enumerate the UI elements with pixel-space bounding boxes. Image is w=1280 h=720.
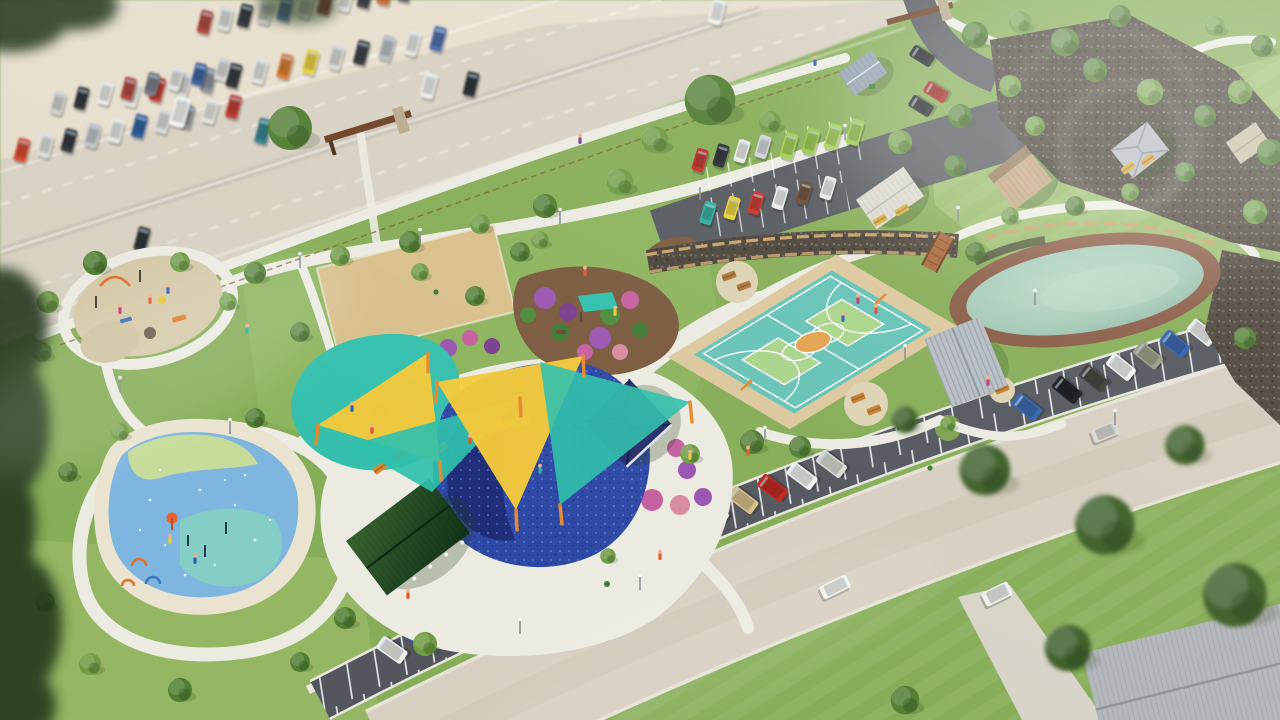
park-aerial-rendering — [0, 0, 1280, 720]
glass-glare — [0, 0, 1280, 720]
rendering-canvas — [0, 0, 1280, 720]
